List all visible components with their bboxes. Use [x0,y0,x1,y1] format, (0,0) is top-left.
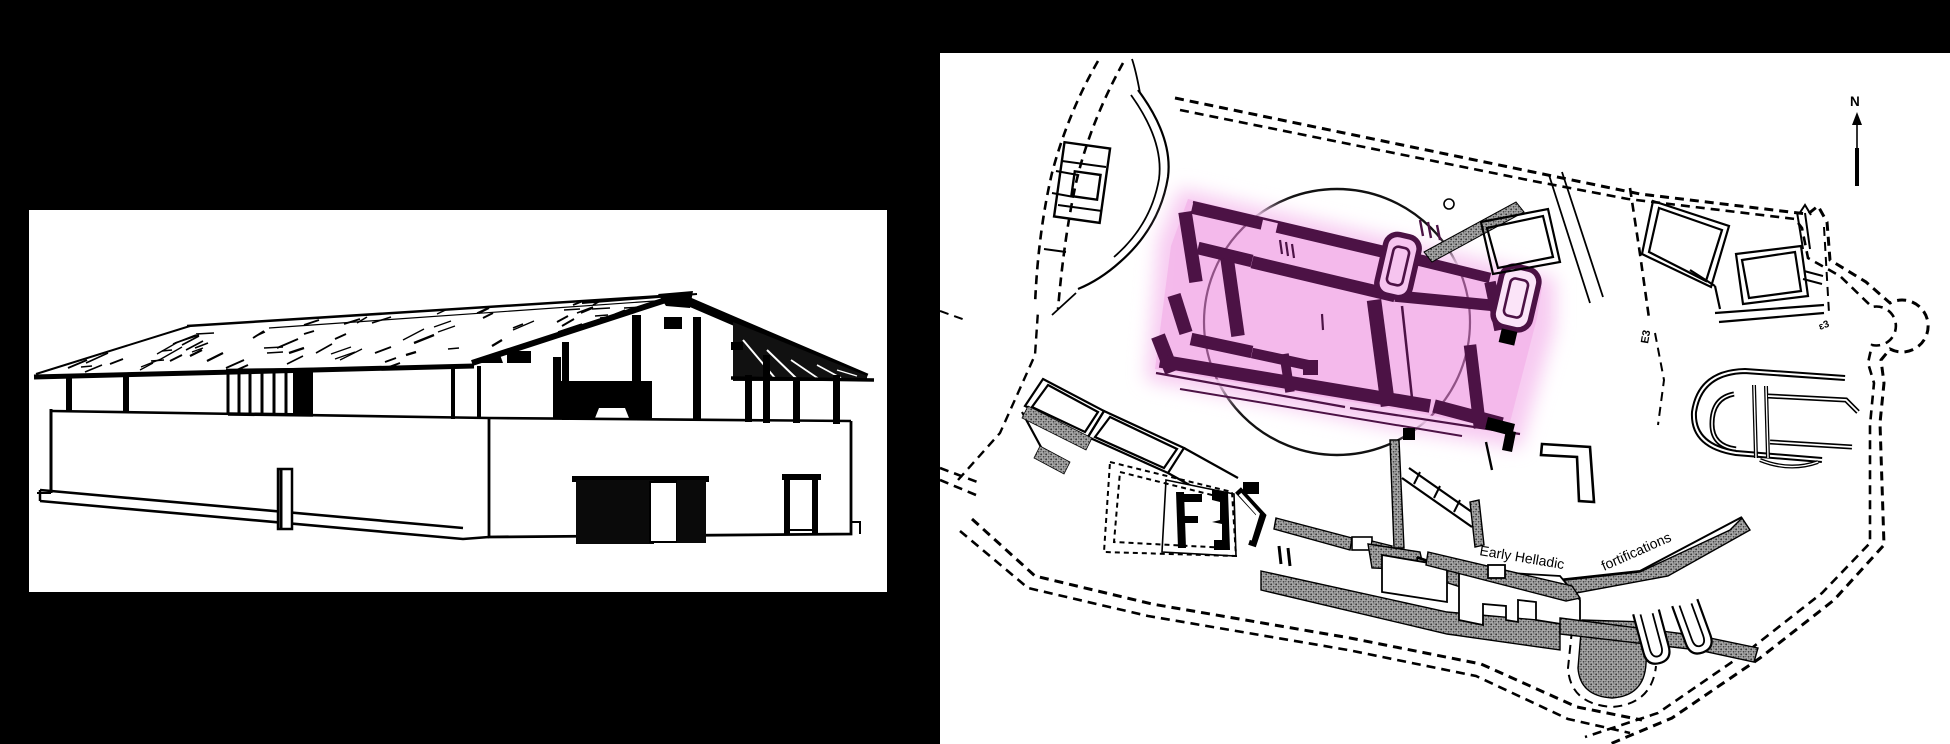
svg-text:ɛ3: ɛ3 [1817,319,1831,333]
svg-text:N: N [1850,94,1860,109]
svg-text:E3: E3 [1639,329,1653,344]
